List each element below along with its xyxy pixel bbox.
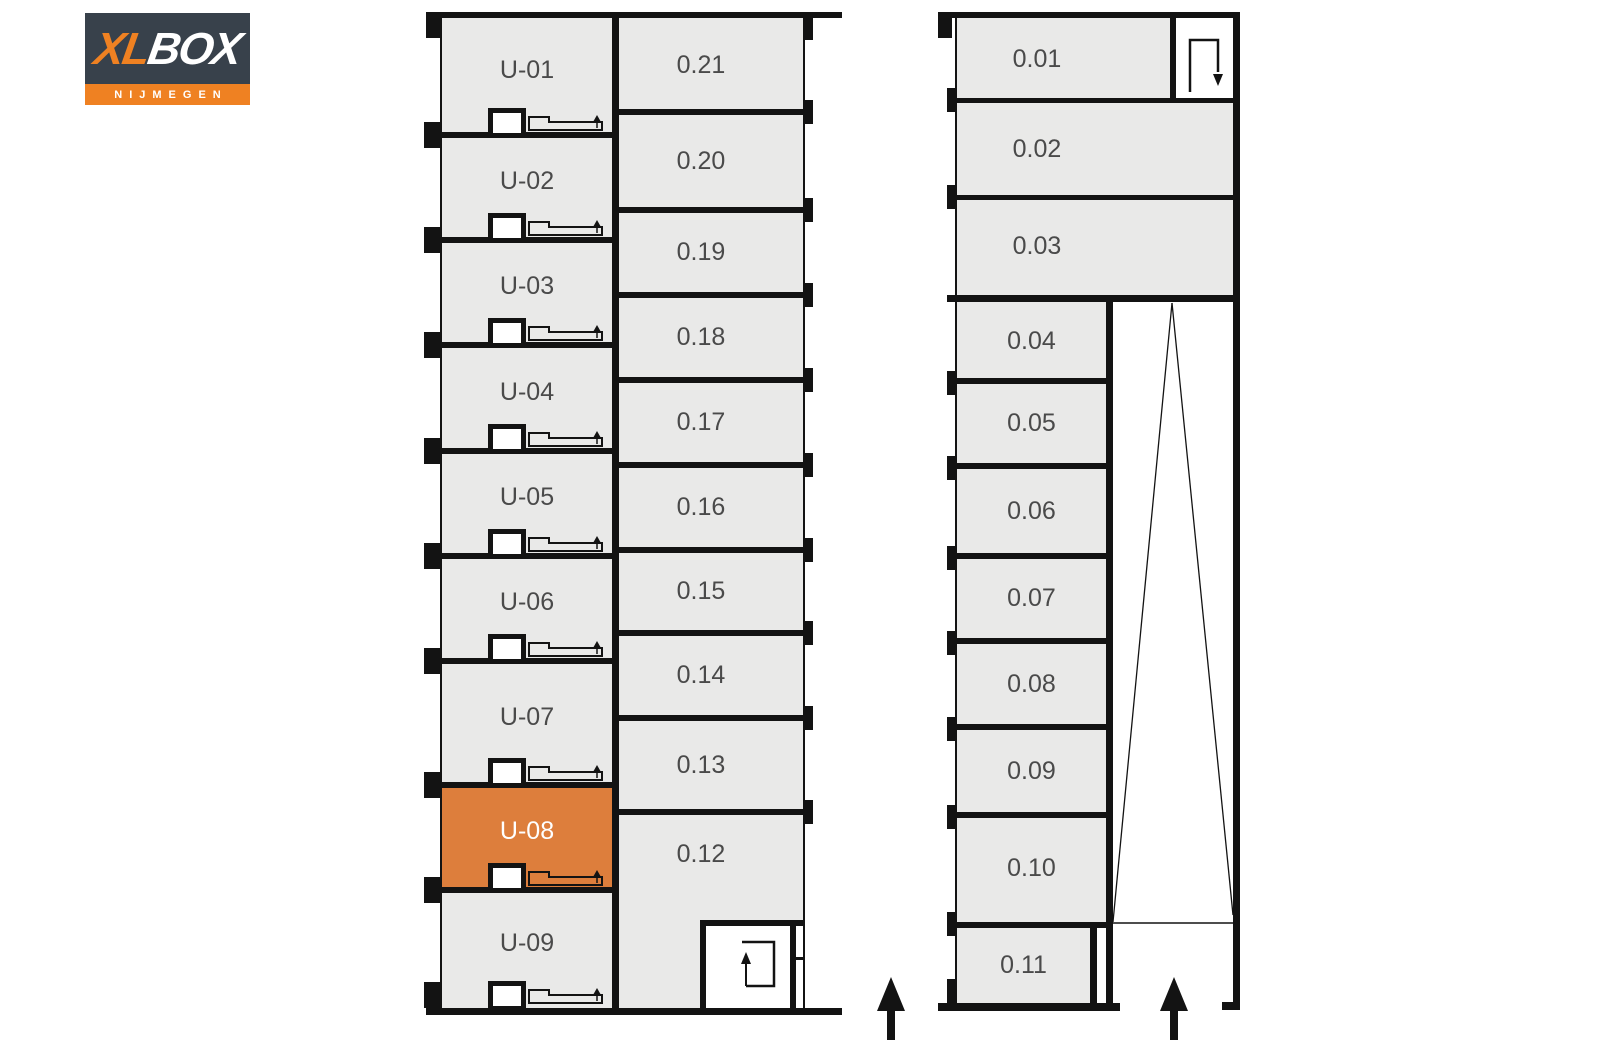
unit-label: U-07	[442, 655, 612, 779]
unit-cell-0-17[interactable]: 0.17	[619, 380, 803, 465]
unit-label: 0.17	[619, 380, 783, 465]
entrance-arrow-icon	[876, 977, 906, 1040]
wall-pier	[424, 227, 440, 253]
unit-cell-0-16[interactable]: 0.16	[619, 465, 803, 550]
unit-cell-0-03[interactable]: 0.03	[957, 198, 1233, 295]
unit-label: 0.21	[619, 18, 783, 112]
wall-pier	[424, 772, 440, 798]
garage-door-icon	[528, 324, 608, 342]
stair-room-wall	[700, 920, 803, 926]
room-divider-wall	[947, 195, 1233, 200]
door-post-square	[488, 758, 526, 788]
unit-cell-0-18[interactable]: 0.18	[619, 295, 803, 380]
room-divider-wall	[947, 98, 1233, 103]
unit-cell-0-02[interactable]: 0.02	[957, 101, 1233, 198]
door-post-square	[488, 981, 526, 1011]
wall-pier	[424, 122, 440, 148]
door-post-square	[488, 863, 526, 893]
wall-pier	[803, 283, 813, 307]
door-post-square	[488, 529, 526, 559]
garage-door-icon	[528, 987, 608, 1005]
unit-label: U-01	[442, 12, 612, 129]
unit-label: 0.14	[619, 633, 783, 718]
shaft-cell	[796, 926, 803, 1008]
facade-line-left	[440, 18, 442, 1008]
room-divider-wall	[612, 109, 813, 115]
stair-entry-up-icon	[734, 934, 782, 994]
ramp-lines	[1080, 295, 1240, 935]
wall-pier	[424, 543, 440, 569]
floor-plan-page: XL BOX NIJMEGEN U-01U-02U-03U-04U-05U-06…	[0, 0, 1600, 1040]
shaft-divider	[796, 957, 803, 960]
wall-pier	[803, 621, 813, 645]
unit-cell-0-19[interactable]: 0.19	[619, 210, 803, 295]
wall-pier	[947, 979, 957, 1003]
unit-label: 0.13	[619, 718, 783, 812]
room-divider-wall	[612, 292, 813, 298]
center-wall	[612, 18, 619, 1008]
unit-label: 0.03	[957, 198, 1117, 295]
outer-wall-top	[426, 12, 842, 18]
door-post-square	[488, 108, 526, 138]
room-divider-wall	[612, 715, 813, 721]
wall-foot	[1222, 1002, 1240, 1010]
wall-pier	[947, 546, 957, 570]
wall-pier	[947, 185, 957, 209]
facade-line-left	[955, 18, 957, 1003]
unit-label: 0.18	[619, 295, 783, 380]
door-post-square	[488, 424, 526, 454]
unit-label: 0.19	[619, 210, 783, 295]
outer-wall-bottom	[938, 1003, 1120, 1011]
unit-label: 0.11	[957, 928, 1090, 1003]
unit-label: 0.15	[619, 550, 783, 633]
wall-pier	[803, 100, 813, 124]
garage-door-icon	[528, 869, 608, 887]
garage-door-icon	[528, 114, 608, 132]
garage-door-icon	[528, 430, 608, 448]
room-side-wall	[1090, 928, 1097, 1003]
buildings-plan: U-01U-02U-03U-04U-05U-06U-07U-08U-090.21…	[0, 0, 1600, 1040]
wall-pier	[803, 16, 813, 40]
wall-pier	[426, 12, 442, 38]
room-divider-wall	[612, 462, 813, 468]
unit-cell-0-01[interactable]: 0.01	[957, 18, 1170, 101]
wall-pier	[424, 648, 440, 674]
unit-label: U-09	[442, 884, 612, 1002]
wall-pier	[947, 912, 957, 936]
door-post-square	[488, 213, 526, 243]
wall-pier	[947, 717, 957, 741]
entrance-arrow-icon	[1159, 977, 1189, 1040]
wall-pier	[803, 706, 813, 730]
unit-cell-0-11[interactable]: 0.11	[957, 928, 1090, 1003]
wall-pier	[938, 12, 952, 38]
unit-cell-0-14[interactable]: 0.14	[619, 633, 803, 718]
stair-room-wall	[1170, 18, 1176, 101]
wall-pier	[803, 538, 813, 562]
garage-door-icon	[528, 219, 608, 237]
wall-pier	[424, 438, 440, 464]
wall-pier	[947, 88, 957, 112]
wall-pier	[424, 877, 440, 903]
garage-door-icon	[528, 640, 608, 658]
wall-pier	[424, 332, 440, 358]
wall-pier	[803, 198, 813, 222]
unit-label: 0.01	[957, 18, 1117, 101]
garage-door-icon	[528, 764, 608, 782]
room-divider-wall	[612, 377, 813, 383]
unit-label: 0.20	[619, 112, 783, 210]
unit-cell-0-13[interactable]: 0.13	[619, 718, 803, 812]
unit-label: 0.02	[957, 101, 1117, 198]
wall-pier	[803, 800, 813, 824]
wall-pier	[947, 805, 957, 829]
wall-pier	[803, 453, 813, 477]
stair-entry-down-icon	[1185, 36, 1229, 96]
unit-cell-0-20[interactable]: 0.20	[619, 112, 803, 210]
unit-cell-0-21[interactable]: 0.21	[619, 18, 803, 112]
unit-label: 0.16	[619, 465, 783, 550]
wall-pier	[947, 631, 957, 655]
garage-door-icon	[528, 535, 608, 553]
facade-line-right	[803, 18, 805, 1008]
room-divider-wall	[612, 547, 813, 553]
door-post-square	[488, 634, 526, 664]
wall-pier	[947, 456, 957, 480]
room-divider-wall	[612, 809, 813, 815]
wall-pier	[947, 371, 957, 395]
stair-room-wall	[700, 920, 706, 1008]
unit-cell-0-15[interactable]: 0.15	[619, 550, 803, 633]
room-divider-wall	[612, 630, 813, 636]
outer-wall-top	[938, 12, 1240, 18]
wall-pier	[803, 368, 813, 392]
door-post-square	[488, 318, 526, 348]
unit-label: 0.12	[619, 826, 783, 882]
room-divider-wall	[612, 207, 813, 213]
wall-pier	[424, 982, 440, 1008]
